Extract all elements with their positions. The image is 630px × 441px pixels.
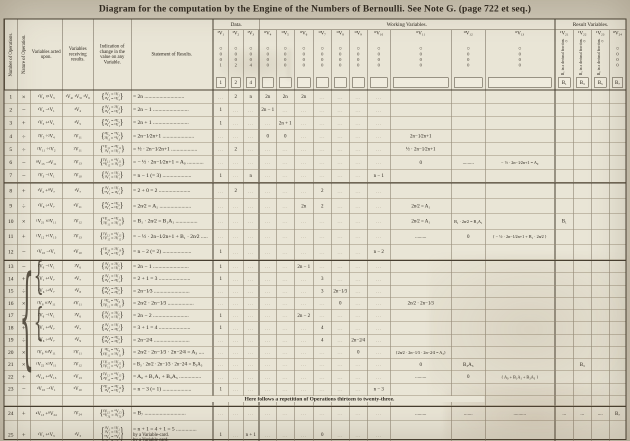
- cell-v13: [486, 310, 556, 322]
- cell-v12: [452, 130, 486, 143]
- cell-v23: [592, 214, 610, 229]
- cell-v11: [391, 169, 452, 182]
- variables-receiving-results: ¹V₄, ¹V₅, ¹V₆: [63, 91, 94, 104]
- cell-v3: ...: [244, 322, 260, 334]
- empty-cell: [610, 396, 626, 406]
- cell-v23: ....: [592, 407, 610, 420]
- cell-v9: ...: [350, 261, 368, 273]
- operation-row-20: 20×¹V₉ ×⁴V₁₁⁵V₁₁{¹V₉ = ⁰V₉⁴V₁₁ = ⁵V₁₁}= …: [5, 347, 626, 359]
- cell-v22: [574, 143, 592, 156]
- cell-v1: 1: [214, 261, 229, 273]
- cell-v10: ...: [368, 214, 391, 229]
- cell-v3: n: [244, 169, 260, 182]
- cell-v9: ...: [350, 104, 368, 117]
- cell-v10: ...: [368, 130, 391, 143]
- indication-line: ¹V₁₃ = ²V₁₃: [103, 237, 121, 241]
- cell-v2: ...: [229, 407, 244, 420]
- cell-v13: [486, 273, 556, 285]
- cell-v9: ...: [350, 184, 368, 199]
- variable-header-v4: ⁰V₄○000: [260, 30, 277, 90]
- variables-receiving-results: ³V₁₃: [63, 371, 94, 383]
- indication-line: ²V₇ = ³V₇: [105, 328, 120, 332]
- left-brace: {: [100, 384, 103, 394]
- operation-symbol: +: [18, 371, 31, 383]
- variables-acted-upon: ¹V₂₂ ×⁵V₁₁: [31, 359, 63, 371]
- cell-v4: ...: [260, 359, 277, 371]
- cell-v21: [556, 91, 574, 104]
- cell-v23: [592, 310, 610, 322]
- cell-v4: ...: [260, 184, 277, 199]
- cell-v22: [574, 261, 592, 273]
- indication-lines: ¹V₅ = ²V₅¹V₁ = ¹V₁: [105, 119, 120, 128]
- cell-v11: 2n⁄2 = A₁: [391, 214, 452, 229]
- cell-v10: n − 3: [368, 383, 391, 395]
- indication-lines: ²V₅ = ⁰V₅²V₄ = ⁰V₄: [104, 132, 120, 141]
- dial-digit: 0: [616, 63, 618, 69]
- cell-v2: ...: [229, 322, 244, 334]
- variable-header-v6: ⁰V₆○000: [295, 30, 314, 90]
- cell-v13: { − ½ · 2n−1⁄2n+1 + B₁ · 2n⁄2 }: [486, 229, 556, 244]
- cell-v6: ...: [295, 143, 314, 156]
- cell-v22: [574, 104, 592, 117]
- variable-header-v23: ¹V₂₃B₅ in a decimal fraction.○B₅: [592, 30, 610, 90]
- statement-of-results: = A₀ + B₁A₁ + B₃A₃ ................: [132, 371, 214, 383]
- statement-line: = B₁ · 2n⁄2 = B₁A₁ ................: [133, 219, 198, 225]
- operation-symbol: +: [18, 117, 31, 130]
- operation-row-19: 19÷³V₆ ÷³V₇¹V₉{³V₆ = ³V₆³V₇ = ³V₇}= 2n−2…: [5, 334, 626, 346]
- cell-v24: [610, 261, 626, 273]
- cell-v1: 1: [214, 245, 229, 260]
- cell-v10: ...: [368, 104, 391, 117]
- operation-row-5: 5÷¹V₁₁ ÷¹V₂²V₁₁{¹V₁₁ = ²V₁₁¹V₂ = ¹V₂}= ½…: [5, 143, 626, 156]
- cell-v3: ...: [244, 245, 260, 260]
- cell-v22: [574, 322, 592, 334]
- cell-v24: [610, 383, 626, 395]
- cell-v21: [556, 184, 574, 199]
- indication-lines: ¹V₆ = ¹V₆¹V₇ = ¹V₇: [105, 202, 120, 211]
- cell-v21: [556, 156, 574, 169]
- cell-v24: [610, 310, 626, 322]
- cell-v8: ...: [332, 199, 350, 214]
- cell-v6: ...: [295, 245, 314, 260]
- operation-row-14: 14+¹V₁ +¹V₇²V₇{¹V₁ = ¹V₁¹V₇ = ²V₇}= 2 + …: [5, 273, 626, 285]
- right-brace: }: [121, 247, 124, 257]
- cell-v13: [486, 298, 556, 310]
- cell-v8: ...: [332, 143, 350, 156]
- operation-symbol: ÷: [18, 285, 31, 297]
- cell-v11: [391, 334, 452, 346]
- right-brace: }: [121, 216, 124, 226]
- cell-v11: [391, 117, 452, 130]
- cell-v7: 2: [314, 199, 332, 214]
- cell-v3: ...: [244, 273, 260, 285]
- cell-v7: ...: [314, 130, 332, 143]
- cell-v8: ...: [332, 322, 350, 334]
- left-brace: {: [100, 347, 103, 357]
- operation-row-4: 4÷²V₅ ÷²V₄¹V₁₁{²V₅ = ⁰V₅²V₄ = ⁰V₄}= 2n−1…: [5, 130, 626, 143]
- digit-wheel-stack: ○002: [229, 37, 243, 77]
- cell-v24: [610, 143, 626, 156]
- operation-symbol: ×: [18, 347, 31, 359]
- right-brace: }: [121, 144, 124, 154]
- variable-header-v1: ¹V₁○0011: [214, 30, 229, 90]
- variable-header-v5: ⁰V₅○000: [277, 30, 295, 90]
- cell-v12: [452, 383, 486, 395]
- cell-v8: ...: [332, 130, 350, 143]
- left-brace: {: [101, 118, 104, 128]
- statement-of-results: = 2n − 1 ..........................: [132, 104, 214, 117]
- operation-number: 24: [5, 407, 18, 420]
- statement-of-results: = B₁ · 2n⁄2 = B₁A₁ ................: [132, 214, 214, 229]
- statement-line: = B₇ ..............................: [133, 411, 186, 417]
- cell-v5: ...: [277, 261, 295, 273]
- diagram-title: Diagram for the computation by the Engin…: [0, 4, 630, 15]
- operation-number: 8: [5, 184, 18, 199]
- indication-lines: ¹V₃ = ¹V₃¹V₁ = ¹V₁: [105, 171, 120, 180]
- cell-v21: [556, 298, 574, 310]
- variables-acted-upon: ¹V₆ ÷¹V₇: [31, 199, 63, 214]
- cell-v23: [592, 383, 610, 395]
- cell-v7: 0: [314, 421, 332, 441]
- cell-v12: [452, 91, 486, 104]
- operation-symbol: +: [18, 184, 31, 199]
- cell-v22: [574, 199, 592, 214]
- cell-v10: ...: [368, 371, 391, 383]
- cell-v5: ...: [277, 285, 295, 297]
- dial-digit: 0: [519, 63, 521, 69]
- cell-v23: [592, 91, 610, 104]
- scanned-document-page: Diagram for the computation by the Engin…: [0, 0, 630, 441]
- cell-v2: ...: [229, 261, 244, 273]
- cell-v3: ...: [244, 371, 260, 383]
- left-brace: {: [100, 158, 103, 168]
- indication-line: ⁴V₁₁ = ⁵V₁₁: [103, 352, 121, 356]
- cell-v10: ...: [368, 229, 391, 244]
- left-brace: {: [101, 92, 104, 102]
- variables-receiving-results: ¹V₂₄: [63, 407, 94, 420]
- group-header-working-variables: Working Variables.: [260, 20, 556, 30]
- cell-v21: [556, 130, 574, 143]
- indication-line: ⁰V₇ = ¹V₇: [104, 191, 120, 195]
- indication-lines: ⁴V₁₃ = ⁰V₁₃⁰V₂₄ = ¹V₂₄: [103, 409, 122, 418]
- cell-v2: ...: [229, 130, 244, 143]
- cell-v12: [452, 334, 486, 346]
- cell-v6: ...: [295, 383, 314, 395]
- cell-v11: [391, 104, 452, 117]
- variables-receiving-results: ²V₇: [63, 273, 94, 285]
- cell-v3: ...: [244, 407, 260, 420]
- variables-receiving-results: ³V₆: [63, 310, 94, 322]
- cell-v7: ...: [314, 383, 332, 395]
- cell-v9: ...: [350, 143, 368, 156]
- repetition-note: Here follows a repetition of Operations …: [155, 396, 485, 402]
- cell-v7: 4: [314, 334, 332, 346]
- cell-v11: 2n−1⁄2n+1: [391, 130, 452, 143]
- cell-v4: ...: [260, 298, 277, 310]
- decimal-fraction-note: B₁ in a decimal fraction.○: [556, 37, 573, 77]
- left-brace: {: [100, 360, 103, 370]
- cell-v12: .......: [452, 407, 486, 420]
- cell-v23: [592, 229, 610, 244]
- col-header-indication-of-change: Indication of change in the value on any…: [94, 20, 132, 90]
- indication-of-change: {¹V₆ = ¹V₆¹V₇ = ¹V₇}: [94, 199, 132, 214]
- indication-lines: ³V₆ = ³V₆³V₇ = ³V₇: [105, 336, 120, 345]
- cell-v1: ...: [214, 184, 229, 199]
- cell-v6: ...: [295, 347, 314, 359]
- operation-row-3: 3+¹V₅ +¹V₁²V₅{¹V₅ = ²V₅¹V₁ = ¹V₁}= 2n + …: [5, 117, 626, 130]
- operation-symbol: ×: [18, 91, 31, 104]
- digit-wheel-stack: ○004: [244, 37, 258, 77]
- indication-of-change: {¹V₂₁ = ¹V₂₁³V₁₁ = ³V₁₁}: [94, 214, 132, 229]
- cell-v23: [592, 261, 610, 273]
- right-brace: }: [121, 384, 124, 394]
- operation-number: 12: [5, 245, 18, 260]
- variable-rotated-note: B₃ in a decimal fraction.: [579, 39, 583, 76]
- statement-line: = B₃ · 2n⁄2 · 2n−1⁄3 · 2n−2⁄4 = B₃A₃: [133, 362, 202, 368]
- operation-number: 2: [5, 104, 18, 117]
- cell-v22: [574, 347, 592, 359]
- initial-value-box: [370, 78, 388, 88]
- right-brace: }: [121, 298, 124, 308]
- cell-v22: [574, 334, 592, 346]
- left-brace: {: [100, 247, 103, 257]
- cell-v3: ...: [244, 298, 260, 310]
- cell-v12: [452, 347, 486, 359]
- decimal-fraction-note: B₅ in a decimal fraction.○: [592, 37, 609, 77]
- dial-digit: 0: [339, 63, 341, 69]
- initial-value-box: [488, 78, 552, 88]
- cell-v9: ...: [350, 273, 368, 285]
- cell-v5: ...: [277, 322, 295, 334]
- indication-line: ¹V₁ = ¹V₁: [105, 316, 120, 320]
- variable-header-v2: ¹V₂○0022: [229, 30, 244, 90]
- statement-line: = 2n⁄2 · 2n−1⁄3 · 2n−2⁄4 = A₃ ....: [133, 350, 204, 356]
- cell-v2: ...: [229, 383, 244, 395]
- cell-v24: [610, 130, 626, 143]
- right-brace: }: [121, 347, 124, 357]
- dial-digit: 0: [420, 63, 422, 69]
- indication-lines: ¹V₁₀ = ²V₁₀¹V₁ = ¹V₁: [103, 248, 121, 257]
- cell-v12: 0: [452, 371, 486, 383]
- cell-v4: ...: [260, 273, 277, 285]
- cell-v9: ...: [350, 169, 368, 182]
- statement-of-results: = n − 2 (= 2) .....................: [132, 245, 214, 260]
- indication-of-change: {¹V₁ = ¹V₁¹V₃ = ¹V₃⁰V₆ = ⁰V₆⁰V₇ = ⁰V₇}: [94, 421, 132, 441]
- cell-v3: ...: [244, 261, 260, 273]
- variable-header-v10: ⁰V₁₀○000: [368, 30, 391, 90]
- cell-v5: 2n + 1: [277, 117, 295, 130]
- left-brace: {: [101, 425, 104, 441]
- indication-of-change: {¹V₁₀ = ²V₁₀¹V₁ = ¹V₁}: [94, 245, 132, 260]
- col-header-number-of-operations: Number of Operations.: [5, 20, 18, 90]
- cell-v13: ..........: [486, 407, 556, 420]
- cell-v21: [556, 199, 574, 214]
- cell-v22: [574, 383, 592, 395]
- cell-v11: [391, 91, 452, 104]
- indication-lines: ¹V₁ = ¹V₁²V₇ = ³V₇: [105, 324, 120, 333]
- dial-digit: 0: [267, 63, 269, 69]
- cell-v7: ...: [314, 169, 332, 182]
- cell-v24: [610, 298, 626, 310]
- cell-v7: ...: [314, 245, 332, 260]
- indication-of-change: {²V₅ = ⁰V₅²V₄ = ⁰V₄}: [94, 130, 132, 143]
- cell-v10: n − 2: [368, 245, 391, 260]
- statement-of-results: = 2n⁄2 · 2n−1⁄3 · 2n−2⁄4 = A₃ ....: [132, 347, 214, 359]
- cell-v1: ...: [214, 407, 229, 420]
- cell-v21: [556, 359, 574, 371]
- cell-v2: ...: [229, 421, 244, 441]
- cell-v2: ...: [229, 214, 244, 229]
- indication-line: ¹V₃ = ¹V₃: [105, 97, 120, 101]
- initial-value-box: [279, 78, 292, 88]
- operation-symbol: ÷: [18, 199, 31, 214]
- operation-row-11: 11+¹V₁₂ +¹V₁₃²V₁₃{¹V₁₂ = ⁰V₁₂¹V₁₃ = ²V₁₃…: [5, 229, 626, 244]
- cell-v22: [574, 371, 592, 383]
- cell-v2: ...: [229, 117, 244, 130]
- cell-v21: [556, 104, 574, 117]
- cell-v1: ...: [214, 156, 229, 169]
- cell-v23: [592, 130, 610, 143]
- operation-row-1: 1×¹V₂ ×¹V₃¹V₄, ¹V₅, ¹V₆{¹V₂ = ¹V₂¹V₃ = ¹…: [5, 91, 626, 104]
- cell-v7: ...: [314, 359, 332, 371]
- cell-v10: ...: [368, 91, 391, 104]
- cell-v8: ...: [332, 371, 350, 383]
- cell-v2: ...: [229, 229, 244, 244]
- right-brace: }: [120, 323, 123, 333]
- operation-symbol: −: [18, 104, 31, 117]
- operation-row-23: 23−²V₁₀ −¹V₁³V₁₀{²V₁₀ = ³V₁₀¹V₁ = ¹V₁}= …: [5, 383, 626, 395]
- indication-of-change: {¹V₈ = ⁰V₈³V₁₁ = ⁴V₁₁}: [94, 298, 132, 310]
- indication-line: ⁵V₁₁ = ⁰V₁₁: [103, 365, 122, 369]
- cell-v24: [610, 91, 626, 104]
- left-brace: {: [101, 286, 104, 296]
- empty-cell: [592, 396, 610, 406]
- indication-line: ¹V₇ = ²V₇: [105, 279, 120, 283]
- variable-header-v12: ⁰V₁₂○000: [452, 30, 486, 90]
- cell-v5: ...: [277, 298, 295, 310]
- cell-v3: ...: [244, 143, 260, 156]
- cell-v3: ...: [244, 359, 260, 371]
- right-brace: }: [122, 409, 125, 419]
- variables-acted-upon: ¹V₉ ×⁴V₁₁: [31, 347, 63, 359]
- variables-receiving-results: ³V₁₁: [63, 199, 94, 214]
- indication-of-change: {²V₁₀ = ³V₁₀¹V₁ = ¹V₁}: [94, 383, 132, 395]
- variables-acted-upon: ¹V₆ −¹V₁: [31, 261, 63, 273]
- operation-row-2: 2−¹V₄ −¹V₁²V₄{¹V₄ = ²V₄¹V₁ = ¹V₁}= 2n − …: [5, 104, 626, 117]
- left-brace: {: [100, 298, 103, 308]
- variables-acted-upon: ²V₁₀ −¹V₁: [31, 383, 63, 395]
- cell-v6: ...: [295, 421, 314, 441]
- cell-v4: ...: [260, 143, 277, 156]
- cell-v22: [574, 169, 592, 182]
- cell-v8: ...: [332, 156, 350, 169]
- cell-v12: [452, 143, 486, 156]
- cell-v3: ...: [244, 285, 260, 297]
- statement-line: = 2n⁄2 · 2n−1⁄3 ...................: [133, 301, 194, 307]
- cell-v8: ...: [332, 359, 350, 371]
- cell-v1: 1: [214, 310, 229, 322]
- cell-v24: [610, 156, 626, 169]
- cell-v2: ...: [229, 245, 244, 260]
- operation-symbol: −: [18, 383, 31, 395]
- variables-receiving-results: ²V₅: [63, 117, 94, 130]
- cell-v11: 2n⁄2 = A₁: [391, 199, 452, 214]
- cell-v22: B₃: [574, 359, 592, 371]
- cell-v9: ...: [350, 371, 368, 383]
- cell-v5: ...: [277, 184, 295, 199]
- cell-v3: ...: [244, 310, 260, 322]
- cell-v8: ...: [332, 104, 350, 117]
- cell-v23: [592, 273, 610, 285]
- operation-number: 1: [5, 91, 18, 104]
- cell-v4: ...: [260, 322, 277, 334]
- cell-v4: ...: [260, 334, 277, 346]
- operation-number: 20: [5, 347, 18, 359]
- cell-v4: ...: [260, 117, 277, 130]
- cell-v3: ...: [244, 214, 260, 229]
- cell-v11: [391, 261, 452, 273]
- cell-v5: ...: [277, 347, 295, 359]
- operation-number: 11: [5, 229, 18, 244]
- cell-v6: ...: [295, 407, 314, 420]
- cell-v10: ...: [368, 421, 391, 441]
- cell-v23: [592, 334, 610, 346]
- statement-of-results: = − ½ · 2n−1⁄2n+1 + B₁ · 2n⁄2 .....: [132, 229, 214, 244]
- operation-symbol: ×: [18, 359, 31, 371]
- variables-receiving-results: ¹V₉: [63, 334, 94, 346]
- variables-acted-upon: ¹V₁₀ −¹V₁: [31, 245, 63, 260]
- cell-v3: ...: [244, 347, 260, 359]
- cell-v1: ...: [214, 285, 229, 297]
- statement-line: = 2n−1⁄2n+1 .......................: [133, 133, 194, 139]
- cell-v13: [486, 347, 556, 359]
- cell-v1: ...: [214, 347, 229, 359]
- cell-v23: [592, 298, 610, 310]
- cell-v10: ...: [368, 273, 391, 285]
- right-brace: }: [120, 425, 123, 441]
- cell-v24: [610, 229, 626, 244]
- cell-v5: ...: [277, 371, 295, 383]
- statement-line: = 2 + 0 = 2 .......................: [133, 188, 190, 194]
- cell-v5: ...: [277, 156, 295, 169]
- cell-v6: ...: [295, 214, 314, 229]
- statement-line: = 2n−1⁄3 ..........................: [133, 288, 190, 294]
- variables-acted-upon: ³V₆ ÷³V₇: [31, 334, 63, 346]
- cell-v23: [592, 117, 610, 130]
- cell-v22: [574, 245, 592, 260]
- indication-of-change: {²V₆ = ³V₆¹V₁ = ¹V₁}: [94, 310, 132, 322]
- indication-lines: ¹V₂₂ = ¹V₂₂⁵V₁₁ = ⁰V₁₁: [103, 360, 122, 369]
- variables-acted-upon: ¹V₁ +¹V₇: [31, 273, 63, 285]
- left-brace: {: [101, 274, 104, 284]
- cell-v21: [556, 245, 574, 260]
- cell-v24: [610, 421, 626, 441]
- cell-v10: ...: [368, 261, 391, 273]
- cell-v6: ...: [295, 169, 314, 182]
- cell-v7: ...: [314, 156, 332, 169]
- operation-number: 9: [5, 199, 18, 214]
- cell-v13: [486, 334, 556, 346]
- variables-receiving-results: ¹V₁₁: [63, 130, 94, 143]
- cell-v6: ...: [295, 273, 314, 285]
- dial-digit: 1: [220, 63, 222, 69]
- cell-v10: ...: [368, 184, 391, 199]
- variables-receiving-results: ²V₁₀: [63, 245, 94, 260]
- indication-lines: ¹V₁₂ = ⁰V₁₂¹V₁₃ = ²V₁₃: [103, 232, 121, 241]
- cell-v12: [452, 310, 486, 322]
- cell-v1: ...: [214, 214, 229, 229]
- operation-row-9: 9÷¹V₆ ÷¹V₇³V₁₁{¹V₆ = ¹V₆¹V₇ = ¹V₇}= 2n⁄2…: [5, 199, 626, 214]
